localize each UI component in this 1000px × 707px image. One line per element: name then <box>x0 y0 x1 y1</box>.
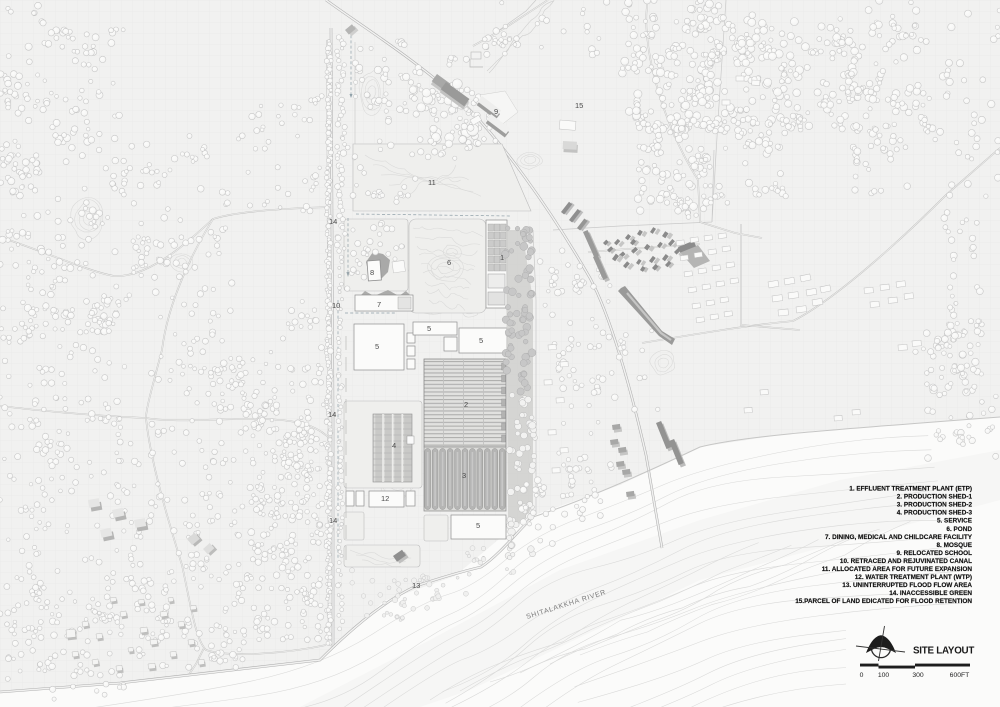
svg-text:15: 15 <box>575 101 583 110</box>
svg-text:14: 14 <box>329 516 337 525</box>
svg-text:14: 14 <box>329 217 337 226</box>
svg-text:1. EFFLUENT TREATMENT PLANT (E: 1. EFFLUENT TREATMENT PLANT (ETP) <box>849 486 972 493</box>
svg-text:6: 6 <box>447 258 451 267</box>
svg-text:12: 12 <box>381 494 389 503</box>
svg-text:10. RETRACED AND REJUVINATED C: 10. RETRACED AND REJUVINATED CANAL <box>840 558 972 565</box>
svg-text:13: 13 <box>412 581 420 590</box>
svg-text:5: 5 <box>427 324 431 333</box>
svg-text:8: 8 <box>370 268 374 277</box>
svg-text:9. RELOCATED SCHOOL: 9. RELOCATED SCHOOL <box>896 550 972 557</box>
svg-text:5: 5 <box>476 521 480 530</box>
svg-text:6. POND: 6. POND <box>946 526 972 533</box>
svg-text:3. PRODUCTION SHED-2: 3. PRODUCTION SHED-2 <box>897 502 973 509</box>
svg-text:15.PARCEL OF LAND EDICATED FOR: 15.PARCEL OF LAND EDICATED FOR FLOOD RET… <box>795 598 972 605</box>
svg-text:9: 9 <box>494 107 498 116</box>
svg-text:100: 100 <box>878 672 890 679</box>
svg-text:4: 4 <box>392 441 396 450</box>
svg-text:11: 11 <box>428 178 436 187</box>
svg-text:300: 300 <box>912 672 924 679</box>
svg-text:2: 2 <box>464 400 468 409</box>
svg-text:5: 5 <box>375 342 379 351</box>
svg-text:8. MOSQUE: 8. MOSQUE <box>936 542 972 549</box>
svg-text:4. PRODUCTION SHED-3: 4. PRODUCTION SHED-3 <box>897 510 973 517</box>
svg-text:5: 5 <box>479 336 483 345</box>
svg-text:600FT: 600FT <box>950 672 970 679</box>
svg-text:14. INACCESSIBLE GREEN: 14. INACCESSIBLE GREEN <box>889 590 972 597</box>
svg-text:7. DINING, MEDICAL AND CHILDCA: 7. DINING, MEDICAL AND CHILDCARE FACILIT… <box>825 534 973 541</box>
svg-text:10: 10 <box>332 301 340 310</box>
svg-text:2. PRODUCTION SHED-1: 2. PRODUCTION SHED-1 <box>897 494 973 501</box>
svg-text:0: 0 <box>860 672 864 679</box>
svg-text:12. WATER TREATMENT PLANT (WTP: 12. WATER TREATMENT PLANT (WTP) <box>855 574 972 581</box>
svg-text:14: 14 <box>328 410 336 419</box>
svg-text:13. UNINTERRUPTED FLOOD FLOW A: 13. UNINTERRUPTED FLOOD FLOW AREA <box>842 582 972 589</box>
svg-text:SITE LAYOUT: SITE LAYOUT <box>913 646 974 657</box>
svg-text:7: 7 <box>377 300 381 309</box>
svg-text:5. SERVICE: 5. SERVICE <box>937 518 973 525</box>
svg-text:1: 1 <box>500 253 504 262</box>
svg-text:11. ALLOCATED AREA FOR FUTURE: 11. ALLOCATED AREA FOR FUTURE EXPANSION <box>822 566 973 573</box>
svg-text:3: 3 <box>462 471 466 480</box>
